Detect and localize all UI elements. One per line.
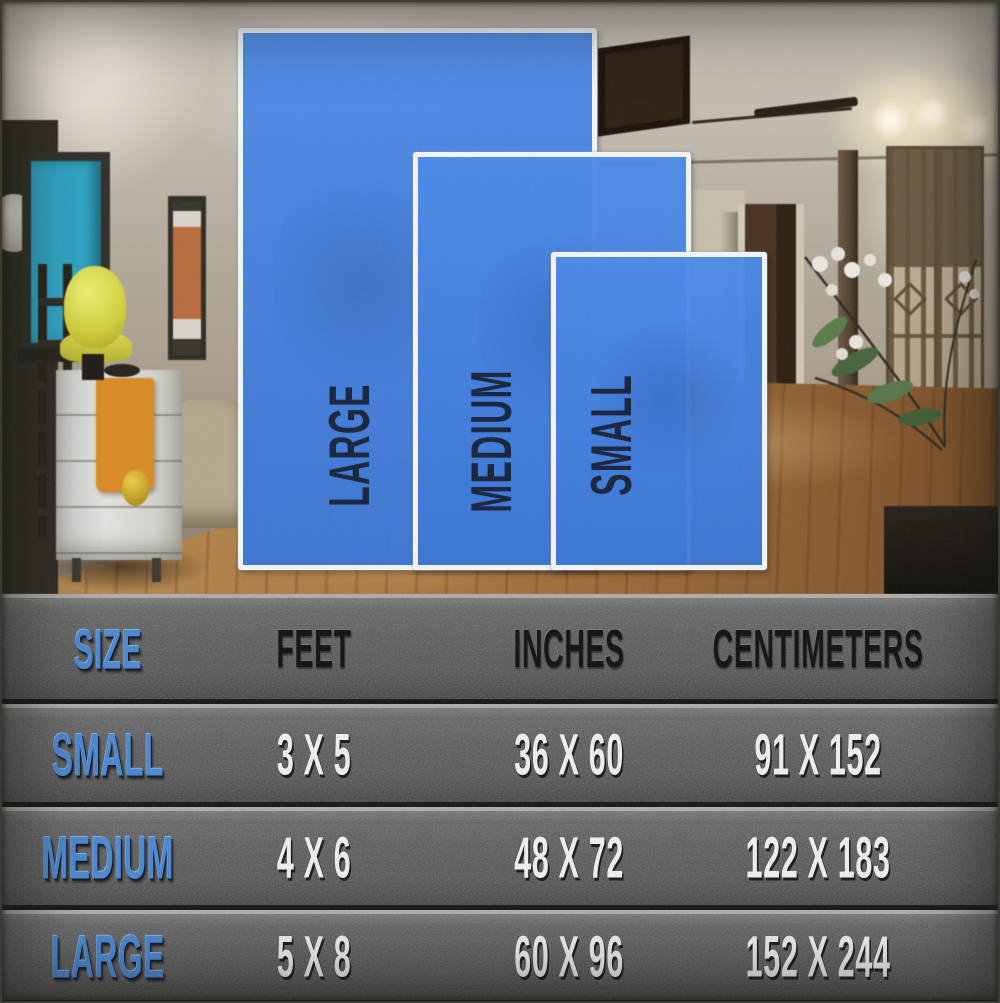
cell-medium-centimeters: 122 X 183 (746, 825, 891, 892)
rug-size-chart: LARGE MEDIUM SMALL SIZE FEET INCHES CENT… (0, 0, 1000, 1003)
column-header-size: SIZE (74, 616, 142, 681)
statue-base (82, 354, 104, 380)
column-header-feet: FEET (276, 618, 351, 680)
cell-small-inches: 36 X 60 (514, 722, 624, 789)
column-header-centimeters: CENTIMETERS (713, 618, 924, 680)
cell-large-centimeters: 152 X 244 (746, 924, 891, 991)
row-label-large: LARGE (51, 923, 165, 992)
table-row-medium: MEDIUM 4 X 6 48 X 72 122 X 183 (2, 807, 1000, 910)
rug-medium-label: MEDIUM (457, 369, 524, 512)
cell-medium-inches: 48 X 72 (514, 825, 624, 892)
rug-large-label: LARGE (315, 383, 382, 507)
cell-small-centimeters: 91 X 152 (754, 722, 881, 789)
cell-medium-feet: 4 X 6 (277, 825, 351, 892)
table-header-row: SIZE FEET INCHES CENTIMETERS (2, 594, 1000, 704)
buddha-statue-head (64, 266, 126, 348)
rug-small-label: SMALL (577, 374, 644, 496)
cell-large-feet: 5 X 8 (277, 924, 351, 991)
rug-small-rectangle: SMALL (551, 252, 767, 570)
wall-art-frame (168, 196, 206, 360)
ceiling-wood-fixture (598, 36, 690, 137)
size-table: SIZE FEET INCHES CENTIMETERS SMALL 3 X 5… (2, 594, 1000, 1003)
dark-planter-table (884, 506, 1000, 594)
row-label-medium: MEDIUM (42, 824, 174, 893)
table-row-small: SMALL 3 X 5 36 X 60 91 X 152 (2, 704, 1000, 807)
ceiling-beam (754, 97, 858, 119)
cell-small-feet: 3 X 5 (277, 722, 351, 789)
table-row-large: LARGE 5 X 8 60 X 96 152 X 244 (2, 910, 1000, 1003)
row-label-small: SMALL (52, 721, 164, 790)
dark-bowl (104, 364, 140, 377)
cabinet-leg (152, 558, 161, 582)
cabinet-leg (72, 558, 81, 582)
cell-large-inches: 60 X 96 (514, 924, 624, 991)
column-header-inches: INCHES (513, 618, 624, 680)
yellow-ornament (122, 470, 149, 506)
